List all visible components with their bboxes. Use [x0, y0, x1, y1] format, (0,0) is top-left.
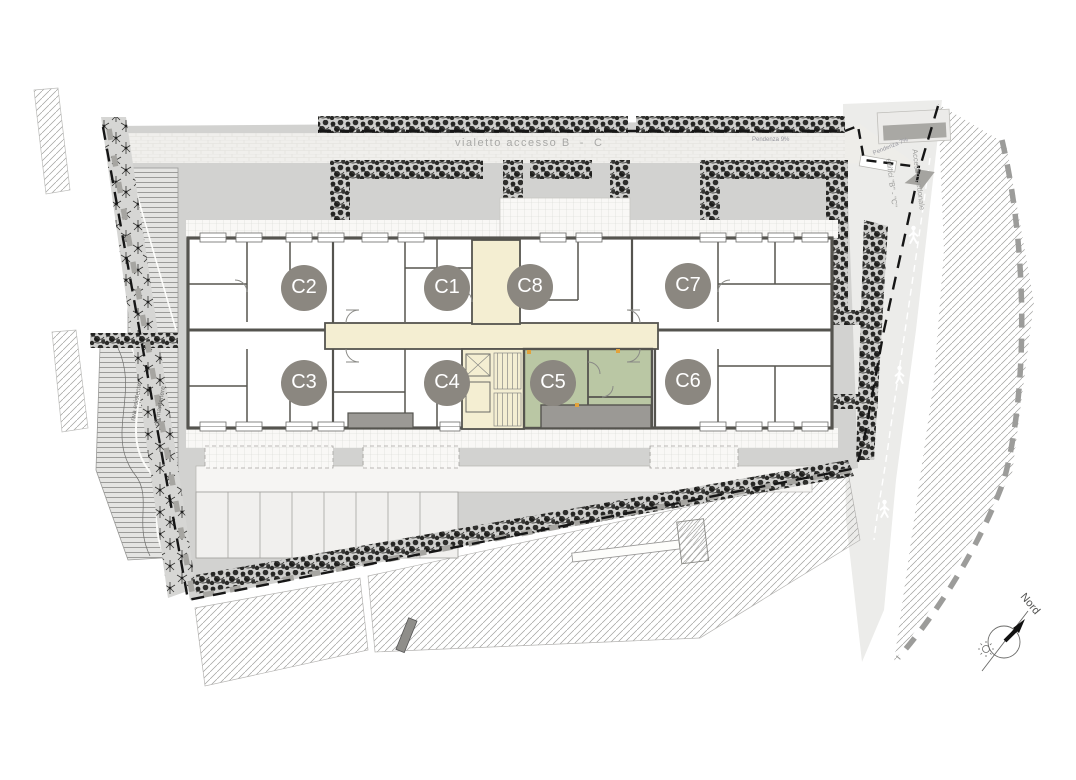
unit-badge-c1-label: C1 — [434, 276, 460, 299]
unit-badge-c4[interactable]: C4 — [424, 360, 470, 406]
unit-badge-c8[interactable]: C8 — [507, 264, 553, 310]
unit-badge-c6-label: C6 — [675, 370, 701, 393]
building — [186, 198, 838, 468]
unit-badge-c8-label: C8 — [517, 275, 543, 298]
unit-badge-c5[interactable]: C5 — [530, 360, 576, 406]
sun-icon — [978, 641, 994, 657]
unit-badge-c6[interactable]: C6 — [665, 359, 711, 405]
unit-badge-c2[interactable]: C2 — [281, 265, 327, 311]
unit-badge-c7-label: C7 — [675, 274, 701, 297]
unit-badge-c7[interactable]: C7 — [665, 263, 711, 309]
north-arrow — [978, 611, 1028, 671]
site-plan: vialetto accesso B - C Pendenza 9% Pende… — [0, 0, 1076, 780]
unit-badge-c3[interactable]: C3 — [281, 360, 327, 406]
unit-badge-c2-label: C2 — [291, 276, 317, 299]
garage-block — [877, 109, 951, 144]
unit-badge-c1[interactable]: C1 — [424, 265, 470, 311]
unit-badge-c5-label: C5 — [540, 371, 566, 394]
unit-badge-c4-label: C4 — [434, 371, 460, 394]
unit-badge-c3-label: C3 — [291, 371, 317, 394]
